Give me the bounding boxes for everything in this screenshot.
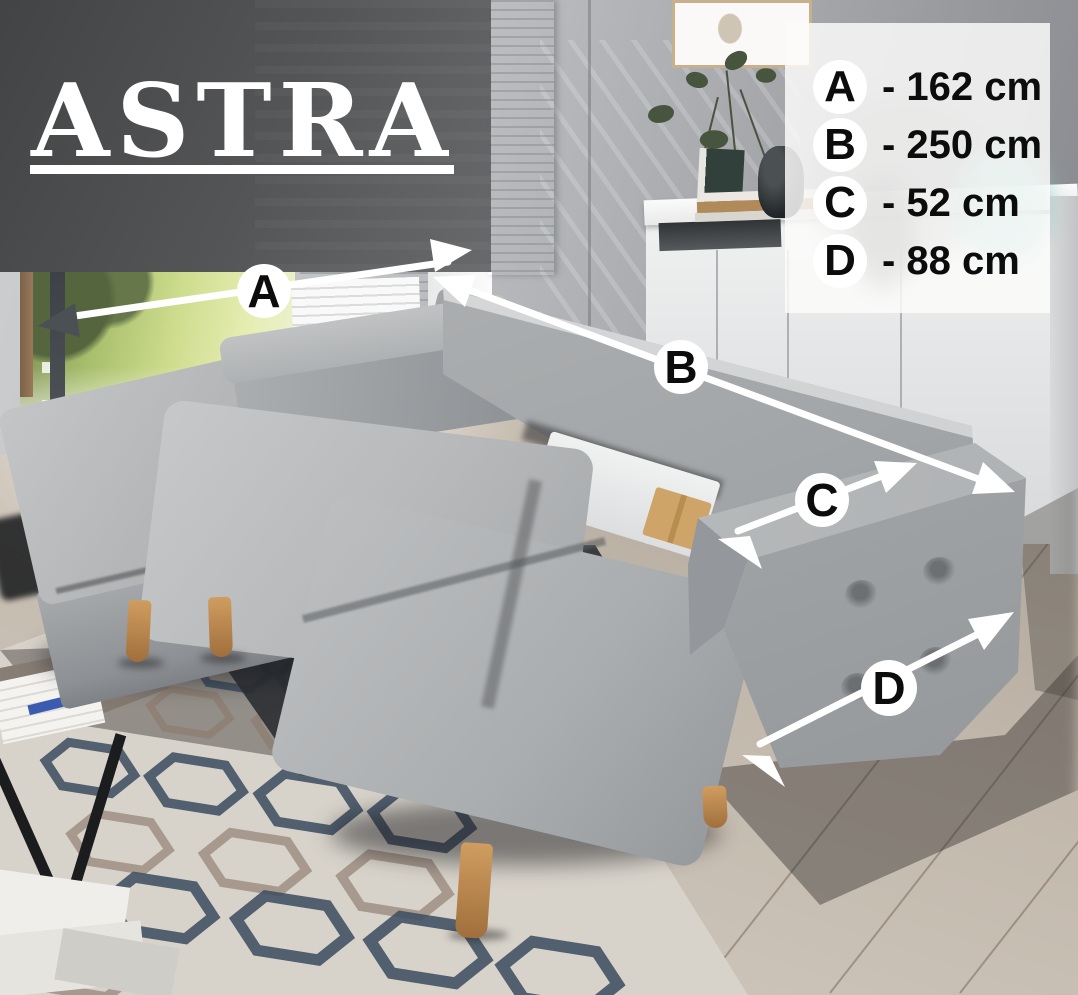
arrow-d-head-right: [968, 612, 1014, 650]
arrow-d-head-left: [742, 755, 785, 787]
arrow-b-line: [445, 281, 1000, 487]
product-photo-astra-sofa: ASTRA A - 162 cm B - 250 cm C - 52 cm D …: [0, 0, 1078, 995]
arrow-c-label: C: [805, 474, 838, 526]
arrow-a-label: A: [247, 265, 280, 317]
dimension-arrows: A B C D: [0, 0, 1078, 995]
arrow-b-head-left: [433, 275, 476, 307]
arrow-a-head-left: [38, 303, 80, 337]
arrow-c-head-right: [874, 461, 917, 493]
arrow-b-head-right: [972, 462, 1015, 494]
arrow-b-label: B: [664, 341, 697, 393]
arrow-a-head-right: [430, 239, 472, 272]
arrow-d-label: D: [872, 662, 905, 714]
arrow-c-head-left: [718, 536, 762, 569]
